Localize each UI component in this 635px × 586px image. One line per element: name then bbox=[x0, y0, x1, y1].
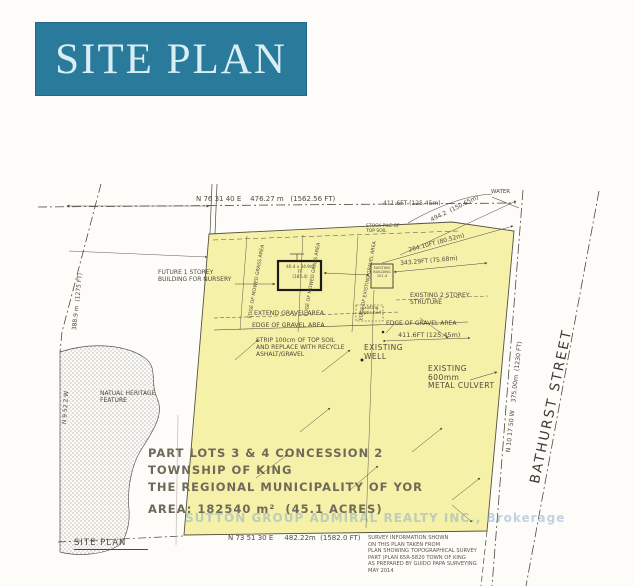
page-title: SITE PLAN bbox=[55, 35, 287, 84]
survey-source-note: SURVEY INFORMATION SHOWN ON THIS PLAN TA… bbox=[368, 535, 477, 575]
natural-heritage-label: NATUAL HERITAGE FEATURE bbox=[100, 391, 155, 405]
gravel-edge-point bbox=[382, 331, 385, 334]
stockpile-label: STOCK PILE OF TOP SOIL bbox=[366, 224, 400, 234]
existing-well-label: EXISTING WELL bbox=[364, 344, 403, 361]
existing-culvert-label: EXISTING 600mm METAL CULVERT bbox=[428, 365, 495, 391]
legal-lots-line: PART LOTS 3 & 4 CONCESSION 2 bbox=[148, 447, 383, 460]
north-bearing-dimension: N 76 31 40 E 476.27 m (1562.56 FT) bbox=[196, 195, 335, 203]
west-lot-line bbox=[60, 184, 101, 352]
title-banner: SITE PLAN bbox=[35, 22, 307, 96]
strip-topsoil-note: STRIP 100cm OF TOP SOIL AND REPLACE WITH… bbox=[256, 338, 345, 359]
south-bearing-dimension: N 73 51 30 E 482.22m (1582.0 FT) bbox=[228, 534, 361, 542]
existing-building-label: EXISTING BUILDING 101.4 bbox=[371, 266, 393, 278]
brokerage-watermark: SUTTON GROUP ADMIRAL REALTY INC., Broker… bbox=[185, 511, 565, 525]
legal-township-line: TOWNSHIP OF KING bbox=[148, 464, 292, 477]
mid-right-dimension: 411.6FT (125.45m) bbox=[398, 332, 460, 339]
extend-gravel-label: EXTEND GRAVEL AREA bbox=[254, 310, 324, 317]
scanned-site-plan-page: { "banner": { "title": "SITE PLAN" }, "c… bbox=[0, 0, 635, 586]
natural-heritage-feature-area bbox=[60, 346, 159, 555]
existing-structure-label: EXISTING 2 STOREY STRUTURE bbox=[410, 293, 470, 307]
water-label: WATER bbox=[491, 189, 510, 195]
legal-municipality-line: THE REGIONAL MUNICIPALITY OF YOR bbox=[148, 481, 423, 494]
edge-gravel-left-label: EDGE OF GRAVEL AREA bbox=[252, 322, 325, 329]
edge-gravel-right-label: EDGE OF GRAVEL AREA bbox=[386, 321, 456, 328]
future-building-label: FUTURE 1 STOREY BUILDING FOR NURSERY bbox=[158, 270, 231, 284]
north-right-dimension: 411.6FT (125.45m) bbox=[383, 201, 441, 208]
site-plan-caption: SITE PLAN bbox=[74, 539, 148, 550]
